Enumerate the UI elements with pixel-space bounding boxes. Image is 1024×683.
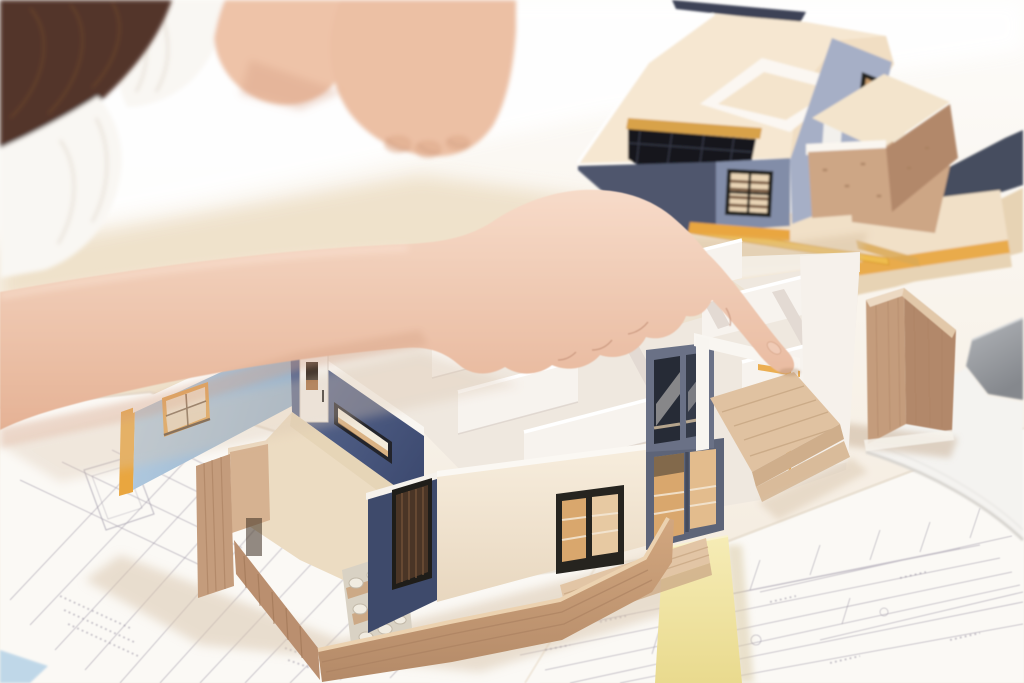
- roof-balcony-front: [808, 148, 890, 218]
- roof-gable-window: [725, 169, 773, 217]
- plank-gap: [246, 518, 262, 556]
- window-glass: [592, 494, 618, 556]
- frame-post-left: [696, 336, 709, 451]
- window-glass: [562, 498, 586, 562]
- front-window: [556, 485, 624, 574]
- fingertip-shadow: [779, 368, 801, 376]
- knuckle: [414, 140, 442, 158]
- knuckle: [445, 135, 471, 151]
- photo-canvas: [0, 0, 1024, 683]
- photo-scene: [0, 0, 1024, 683]
